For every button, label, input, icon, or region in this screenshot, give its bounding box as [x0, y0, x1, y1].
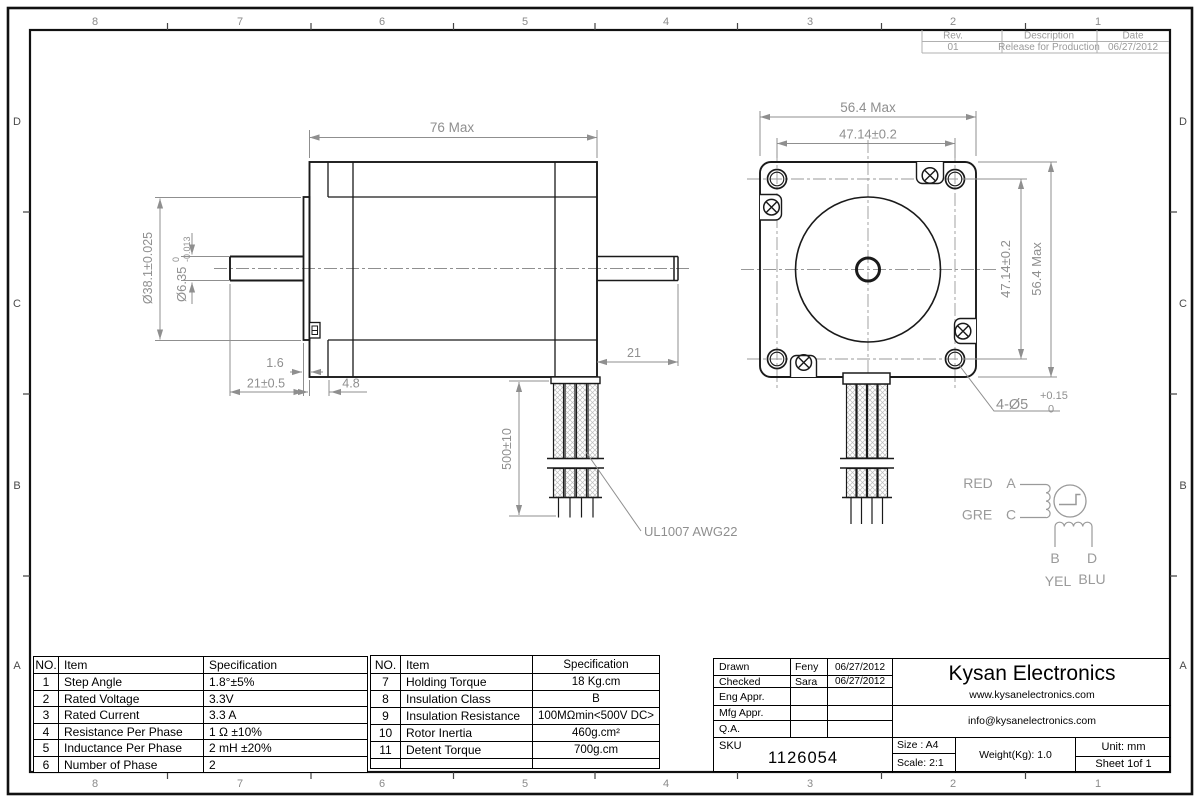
spec-row: 4 Resistance Per Phase 1 Ω ±10%	[34, 724, 368, 740]
spec-item: Resistance Per Phase	[59, 724, 204, 740]
holes-tol-lower: 0	[1048, 404, 1054, 416]
mounting-holes	[768, 170, 965, 369]
lead-red-label: RED	[963, 475, 993, 491]
zone-number: 8	[92, 778, 98, 790]
approval-row: Eng Appr.	[714, 688, 892, 706]
spec-item: Holding Torque	[401, 674, 533, 691]
approval-date: 06/27/2012	[828, 659, 892, 675]
description-header: Description	[1024, 31, 1074, 42]
spec-row: 5 Inductance Per Phase 2 mH ±20%	[34, 740, 368, 757]
company-website: www.kysanelectronics.com	[893, 686, 1171, 701]
zone-labels-left: D C B A	[13, 116, 21, 672]
title-block: Drawn Feny 06/27/2012 Checked Sara 06/27…	[713, 658, 1170, 772]
spec-item: Rotor Inertia	[401, 725, 533, 742]
spec-row: 10 Rotor Inertia 460g.cm²	[371, 725, 660, 742]
date-header: Date	[1122, 31, 1144, 42]
dim-hole-spacing-v: 47.14±0.2	[998, 240, 1013, 298]
zone-labels-top: 8 7 6 5 4 3 2 1	[92, 16, 1101, 28]
sheet-size: Size : A4	[893, 738, 955, 754]
company-email: info@kysanelectronics.com	[893, 706, 1171, 738]
shaft-dia-value: Ø6.35	[174, 267, 189, 302]
spec-no: 1	[34, 674, 59, 691]
zone-number: 3	[807, 16, 813, 28]
spec-value: 3.3 A	[204, 707, 368, 724]
spec-row-empty	[371, 759, 660, 769]
lead-wires-front	[840, 373, 894, 524]
front-centerlines	[741, 140, 997, 399]
approval-row: Mfg Appr.	[714, 706, 892, 721]
zone-letter: C	[1179, 298, 1187, 310]
holes-tol-upper: +0.15	[1040, 390, 1068, 402]
approval-label: Mfg Appr.	[714, 706, 791, 720]
approval-date	[828, 688, 892, 705]
dim-hole-spacing-h: 47.14±0.2	[839, 127, 897, 142]
zone-number: 5	[522, 778, 528, 790]
approval-row: Checked Sara 06/27/2012	[714, 676, 892, 688]
spec-value: 460g.cm²	[533, 725, 660, 742]
dim-shaft-diameter: Ø6.35 0 -0.013	[171, 236, 192, 302]
rotor-symbol	[1059, 495, 1081, 505]
zone-number: 7	[237, 16, 243, 28]
dim-lead-length: 500±10	[500, 428, 514, 470]
spec-table-left: NO. Item Specification 1 Step Angle 1.8°…	[33, 656, 368, 773]
dim-boss-diameter: Ø38.1±0.025	[141, 232, 155, 304]
terminal-c-label: C	[1006, 507, 1016, 523]
spec-item: Inductance Per Phase	[59, 740, 204, 757]
weight-cell: Weight(Kg): 1.0	[956, 738, 1076, 773]
motor-front-view: 56.4 Max 47.14±0.2 47.14±0.2 56.4 Max 4-…	[741, 100, 1068, 524]
spec-row: 6 Number of Phase 2	[34, 757, 368, 773]
approval-date	[828, 721, 892, 737]
dim-height: 56.4 Max	[1029, 242, 1044, 296]
spec-item: Insulation Resistance	[401, 708, 533, 725]
drawing-sheet: 8 7 6 5 4 3 2 1 8 7 6 5 4 3 2 1 D C B A	[0, 0, 1200, 802]
zone-number: 2	[950, 16, 956, 28]
dim-holes-callout: 4-Ø5	[996, 397, 1028, 413]
zone-number: 2	[950, 778, 956, 790]
format-band: Size : A4 Scale: 2:1 Weight(Kg): 1.0 Uni…	[893, 738, 1171, 773]
approval-label: Checked	[714, 676, 791, 687]
spec-no: 8	[371, 691, 401, 708]
lead-yel-label: YEL	[1045, 573, 1072, 589]
zone-number: 6	[379, 16, 385, 28]
zone-number: 3	[807, 778, 813, 790]
column-header-item: Item	[401, 656, 533, 674]
company-section: Kysan Electronics www.kysanelectronics.c…	[893, 659, 1171, 773]
spec-value: B	[533, 691, 660, 708]
side-view-dimensions	[155, 130, 678, 531]
zone-letter: D	[13, 116, 21, 128]
column-header-item: Item	[59, 657, 204, 674]
spec-row: 7 Holding Torque 18 Kg.cm	[371, 674, 660, 691]
approval-name	[791, 721, 828, 737]
spec-item: Rated Voltage	[59, 691, 204, 707]
spec-no: 5	[34, 740, 59, 757]
dim-rear-shaft: 21	[627, 346, 641, 360]
dim-width: 56.4 Max	[840, 100, 896, 115]
zone-labels-bottom: 8 7 6 5 4 3 2 1	[92, 778, 1101, 790]
approval-row: Drawn Feny 06/27/2012	[714, 659, 892, 676]
spec-value: 700g.cm	[533, 742, 660, 759]
spec-no: 11	[371, 742, 401, 759]
dim-overall-length: 76 Max	[430, 120, 475, 135]
spec-row: 11 Detent Torque 700g.cm	[371, 742, 660, 759]
approval-row: Q.A.	[714, 721, 892, 738]
spec-no: 9	[371, 708, 401, 725]
company-name: Kysan Electronics	[893, 659, 1171, 686]
column-header-no: NO.	[371, 656, 401, 674]
spec-table-right: NO. Item Specification 7 Holding Torque …	[370, 655, 660, 769]
zone-letter: A	[1179, 660, 1187, 672]
unit-sheet-cell: Unit: mm Sheet 1of 1	[1076, 738, 1171, 773]
spec-item: Number of Phase	[59, 757, 204, 773]
spec-item: Step Angle	[59, 674, 204, 691]
zone-number: 1	[1095, 16, 1101, 28]
spec-item: Detent Torque	[401, 742, 533, 759]
spec-no: 10	[371, 725, 401, 742]
wiring-diagram: RED A GRE C B D YEL BLU	[962, 475, 1106, 589]
approvals-section: Drawn Feny 06/27/2012 Checked Sara 06/27…	[714, 659, 893, 773]
lead-blu-label: BLU	[1078, 571, 1105, 587]
terminal-b-label: B	[1050, 550, 1059, 566]
approval-name	[791, 706, 828, 720]
spec-no: 7	[371, 674, 401, 691]
spec-no: 4	[34, 724, 59, 740]
zone-number: 7	[237, 778, 243, 790]
unit-label: Unit: mm	[1076, 738, 1171, 757]
size-scale-cell: Size : A4 Scale: 2:1	[893, 738, 956, 773]
spec-value: 18 Kg.cm	[533, 674, 660, 691]
shaft-tol-lower: -0.013	[182, 236, 192, 262]
lead-gre-label: GRE	[962, 507, 992, 523]
terminal-a-label: A	[1006, 475, 1016, 491]
rev-description: Release for Production	[998, 42, 1100, 53]
rev-date: 06/27/2012	[1108, 42, 1158, 53]
motor-symbol	[1054, 485, 1086, 517]
sku-number: 1126054	[714, 749, 892, 768]
sheet-number: Sheet 1of 1	[1076, 757, 1171, 772]
spec-value: 1 Ω ±10%	[204, 724, 368, 740]
spec-value: 1.8°±5%	[204, 674, 368, 691]
spec-no: 2	[34, 691, 59, 707]
sheet-scale: Scale: 2:1	[893, 754, 955, 773]
revision-table: Rev. Description Date 01 Release for Pro…	[922, 30, 1169, 53]
lead-wires-side	[547, 377, 604, 518]
zone-labels-right: D C B A	[1179, 116, 1187, 672]
spec-row: 1 Step Angle 1.8°±5%	[34, 674, 368, 691]
spec-item: Rated Current	[59, 707, 204, 724]
zone-number: 5	[522, 16, 528, 28]
zone-number: 4	[663, 16, 669, 28]
zone-letter: B	[13, 480, 20, 492]
spec-value: 2	[204, 757, 368, 773]
approval-label: Q.A.	[714, 721, 791, 737]
shaft-tol-upper: 0	[171, 257, 181, 262]
spec-value: 2 mH ±20%	[204, 740, 368, 757]
zone-number: 4	[663, 778, 669, 790]
coil-bd	[1055, 522, 1092, 526]
motor-side-view: 76 Max Ø38.1±0.025 Ø6.35 0 -0.013 1.6 21…	[141, 120, 737, 539]
column-header-spec: Specification	[533, 656, 660, 674]
dim-shaft-length: 21±0.5	[247, 377, 285, 391]
rev-header: Rev.	[943, 31, 963, 42]
approval-name: Feny	[791, 659, 828, 675]
approval-label: Eng Appr.	[714, 688, 791, 705]
spec-value: 100MΩmin<500V DC>	[533, 708, 660, 725]
approval-name	[791, 688, 828, 705]
spec-value: 3.3V	[204, 691, 368, 707]
spec-no: 6	[34, 757, 59, 773]
rev-value: 01	[947, 42, 959, 53]
wire-spec-label: UL1007 AWG22	[644, 524, 737, 539]
column-header-spec: Specification	[204, 657, 368, 674]
zone-letter: A	[13, 660, 21, 672]
zone-letter: B	[1179, 480, 1186, 492]
zone-number: 6	[379, 778, 385, 790]
dim-boss-thickness: 1.6	[266, 356, 283, 370]
dim-front-cap: 4.8	[342, 377, 359, 391]
zone-letter: C	[13, 298, 21, 310]
zone-number: 8	[92, 16, 98, 28]
approval-name: Sara	[791, 676, 828, 687]
approval-date: 06/27/2012	[828, 676, 892, 687]
spec-row: 2 Rated Voltage 3.3V	[34, 691, 368, 707]
zone-letter: D	[1179, 116, 1187, 128]
approval-date	[828, 706, 892, 720]
spec-item: Insulation Class	[401, 691, 533, 708]
sku-cell: SKU 1126054	[714, 738, 892, 773]
spec-row: 9 Insulation Resistance 100MΩmin<500V DC…	[371, 708, 660, 725]
column-header-no: NO.	[34, 657, 59, 674]
spec-row: 8 Insulation Class B	[371, 691, 660, 708]
spec-row: 3 Rated Current 3.3 A	[34, 707, 368, 724]
terminal-d-label: D	[1087, 550, 1097, 566]
spec-no: 3	[34, 707, 59, 724]
approval-label: Drawn	[714, 659, 791, 675]
coil-ac	[1046, 485, 1050, 518]
zone-number: 1	[1095, 778, 1101, 790]
